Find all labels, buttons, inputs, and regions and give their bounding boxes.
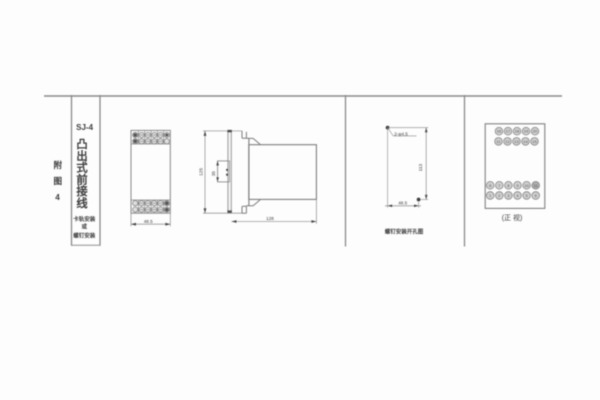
- svg-text:卡轨安装: 卡轨安装: [73, 215, 96, 223]
- svg-text:19: 19: [524, 129, 529, 134]
- svg-text:18: 18: [515, 129, 520, 134]
- svg-text:4: 4: [55, 193, 60, 202]
- svg-text:SJ-4: SJ-4: [76, 123, 93, 132]
- svg-text:(正 视): (正 视): [502, 213, 523, 222]
- svg-text:凸: 凸: [76, 138, 87, 151]
- svg-text:125: 125: [199, 168, 205, 176]
- svg-text:螺钉安装: 螺钉安装: [73, 231, 96, 239]
- svg-text:附: 附: [53, 159, 62, 170]
- svg-text:线: 线: [76, 196, 88, 210]
- svg-text:或: 或: [82, 222, 88, 230]
- svg-text:13: 13: [514, 139, 519, 144]
- svg-text:图: 图: [53, 176, 62, 186]
- svg-text:20: 20: [533, 129, 538, 134]
- svg-text:式: 式: [76, 161, 88, 175]
- svg-text:接: 接: [76, 184, 88, 198]
- svg-text:前: 前: [76, 172, 87, 186]
- svg-text:螺钉安装开孔图: 螺钉安装开孔图: [385, 228, 424, 236]
- svg-text:16: 16: [497, 129, 502, 134]
- svg-text:48.5: 48.5: [144, 219, 153, 224]
- svg-text:128: 128: [266, 216, 274, 221]
- svg-text:2-φ4.5: 2-φ4.5: [394, 131, 408, 136]
- svg-text:14: 14: [523, 139, 528, 144]
- svg-text:48.5: 48.5: [398, 200, 407, 205]
- svg-text:113: 113: [418, 163, 423, 171]
- svg-text:10: 10: [524, 183, 529, 188]
- svg-text:17: 17: [506, 129, 511, 134]
- svg-text:35: 35: [211, 171, 216, 177]
- svg-text:12: 12: [505, 139, 510, 144]
- svg-text:出: 出: [76, 149, 87, 163]
- svg-text:15: 15: [532, 139, 537, 144]
